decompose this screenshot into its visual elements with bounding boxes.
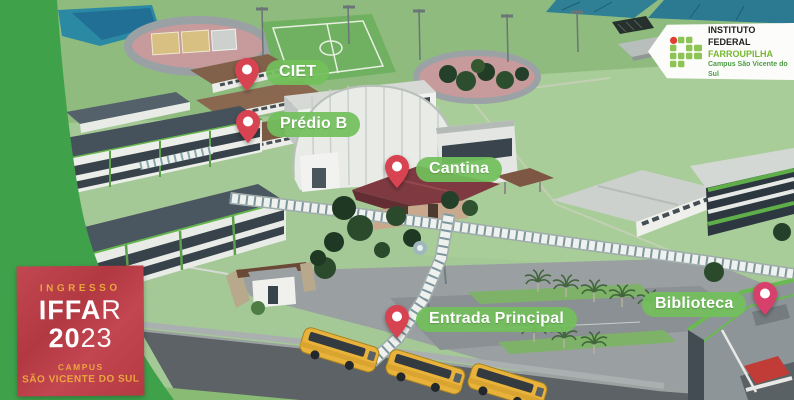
campus-name: Campus São Vicente do Sul	[708, 60, 794, 79]
location-pin-icon	[235, 109, 261, 145]
campus-map-poster: CIET Prédio B Cantina Entrada Principal …	[0, 0, 794, 400]
location-pin-icon	[234, 57, 260, 93]
institution-logo-banner: INSTITUTO FEDERAL FARROUPILHA Campus São…	[648, 23, 794, 80]
institution-brand: FARROUPILHA	[708, 48, 794, 60]
location-pin-icon	[384, 304, 410, 340]
institution-name: INSTITUTO FEDERAL	[708, 24, 794, 48]
map-pin-entrada-principal[interactable]: Entrada Principal	[384, 304, 577, 340]
ingresso-2023-badge: INGRESSO IFFAR 2023 CAMPUS SÃO VICENTE D…	[17, 266, 145, 397]
map-pin-ciet[interactable]: CIET	[234, 57, 329, 93]
badge-year: 2023	[48, 325, 112, 352]
map-pin-biblioteca[interactable]: Biblioteca	[642, 281, 778, 317]
badge-campus-name: SÃO VICENTE DO SUL	[22, 374, 139, 386]
map-pin-predio-b[interactable]: Prédio B	[235, 109, 360, 145]
map-label-entrada-principal: Entrada Principal	[416, 307, 577, 332]
map-label-biblioteca: Biblioteca	[642, 292, 746, 317]
badge-ingresso-label: INGRESSO	[40, 283, 121, 295]
map-label-ciet: CIET	[266, 60, 329, 85]
badge-brand: IFFAR	[39, 297, 122, 325]
location-pin-icon	[752, 281, 778, 317]
if-institute-logo-icon	[670, 36, 702, 68]
location-pin-icon	[384, 154, 410, 190]
badge-campus-label: CAMPUS	[58, 362, 104, 372]
map-pin-cantina[interactable]: Cantina	[384, 154, 502, 190]
map-label-predio-b: Prédio B	[267, 112, 360, 137]
fountain	[413, 241, 427, 255]
map-label-cantina: Cantina	[416, 157, 502, 182]
